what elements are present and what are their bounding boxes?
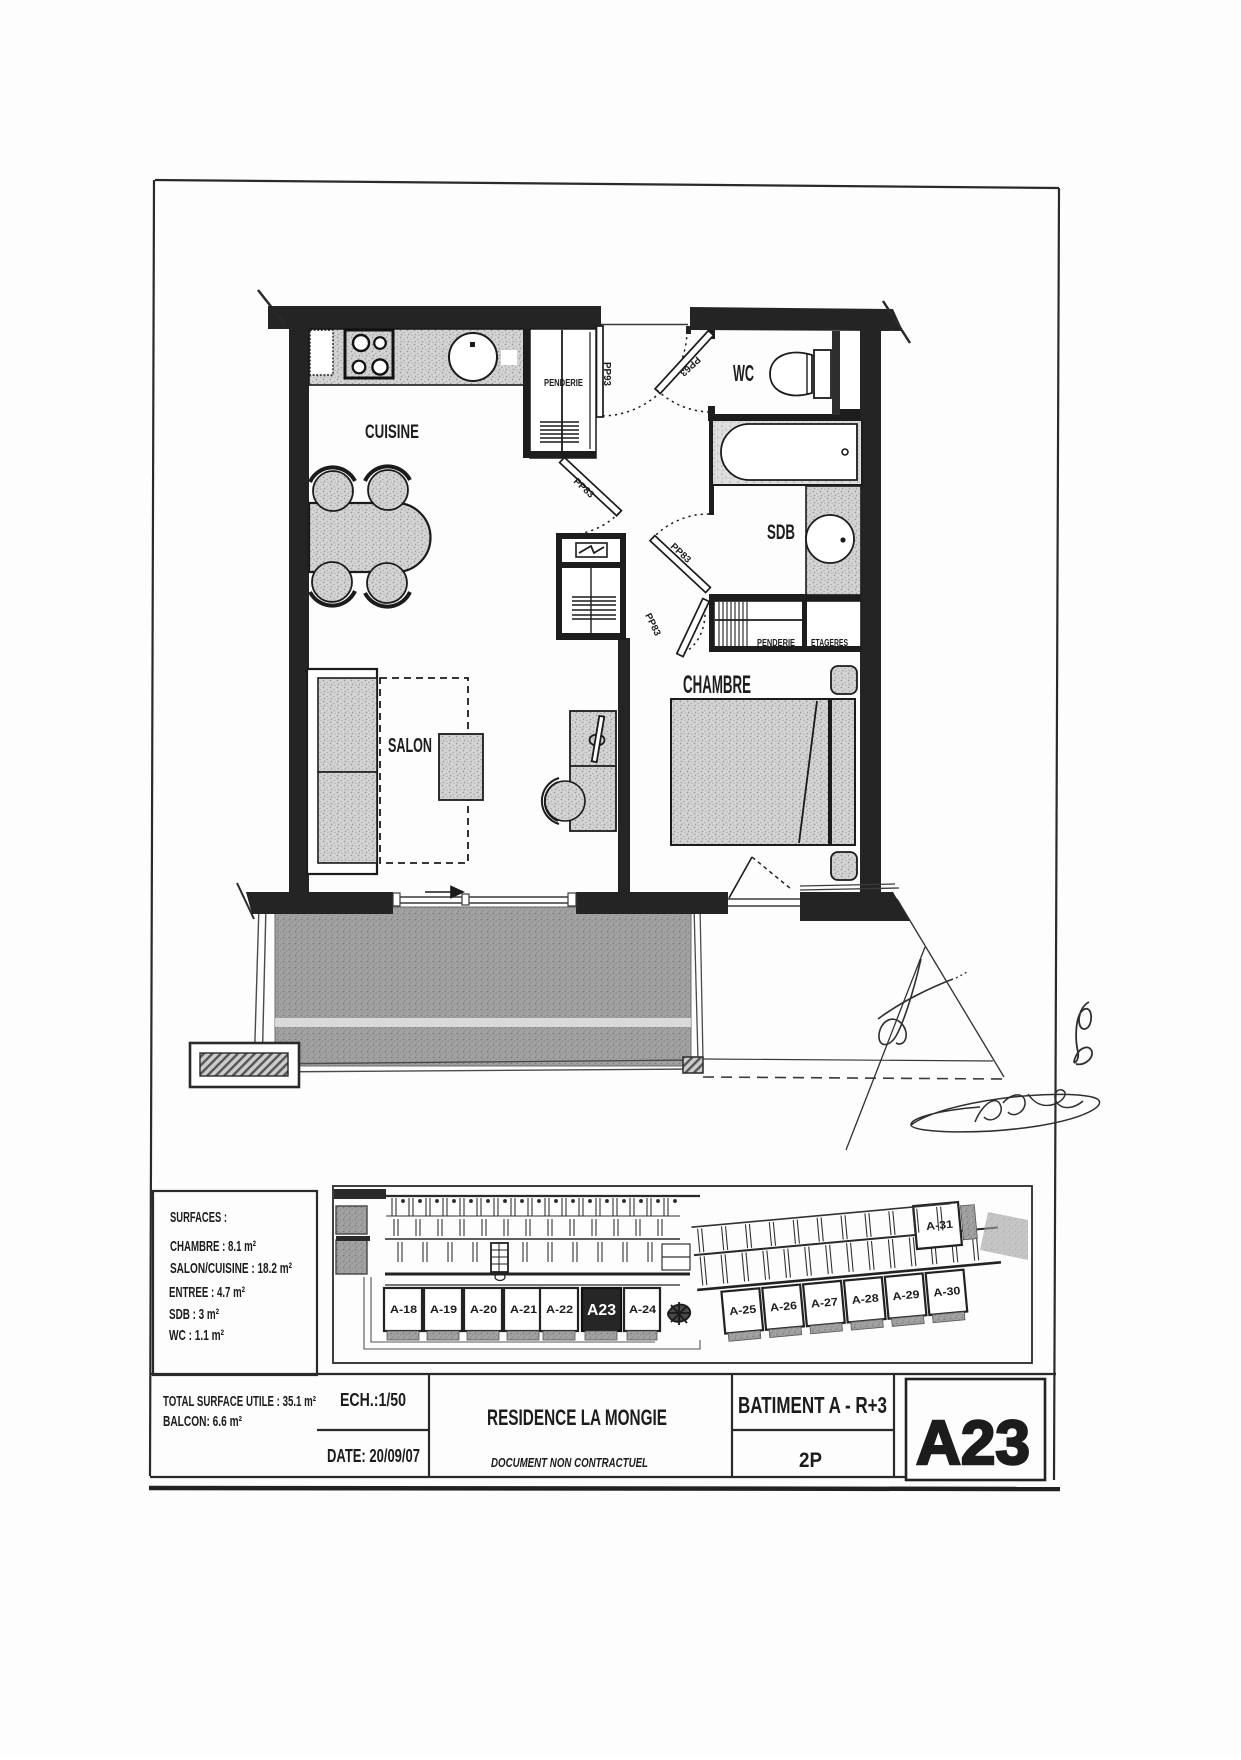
svg-text:PP93: PP93 xyxy=(601,362,612,386)
svg-text:BALCON: 6.6 m²: BALCON: 6.6 m² xyxy=(163,1414,242,1430)
svg-text:A-28: A-28 xyxy=(851,1293,879,1307)
svg-text:A-30: A-30 xyxy=(933,1285,961,1299)
svg-text:A-25: A-25 xyxy=(729,1304,757,1318)
svg-text:A-20: A-20 xyxy=(470,1304,497,1316)
svg-text:A23: A23 xyxy=(916,1409,1030,1478)
svg-text:PENDERIE: PENDERIE xyxy=(544,377,583,389)
svg-text:DATE: 20/09/07: DATE: 20/09/07 xyxy=(327,1446,420,1466)
svg-text:WC: WC xyxy=(733,360,754,386)
svg-text:CUISINE: CUISINE xyxy=(365,422,419,443)
svg-text:2P: 2P xyxy=(799,1449,822,1472)
svg-text:SALON/CUISINE : 18.2 m²: SALON/CUISINE : 18.2 m² xyxy=(170,1260,292,1277)
svg-text:A-27: A-27 xyxy=(810,1296,838,1310)
svg-text:CHAMBRE : 8.1 m²: CHAMBRE : 8.1 m² xyxy=(170,1238,256,1255)
svg-text:TOTAL SURFACE UTILE : 35.1 m²: TOTAL SURFACE UTILE : 35.1 m² xyxy=(163,1394,316,1410)
svg-text:A-29: A-29 xyxy=(892,1289,920,1303)
svg-text:A-24: A-24 xyxy=(629,1304,657,1316)
svg-text:ETAGERES: ETAGERES xyxy=(811,638,848,649)
svg-text:ENTREE : 4.7 m²: ENTREE : 4.7 m² xyxy=(169,1284,245,1301)
svg-text:PENDERIE: PENDERIE xyxy=(757,638,795,649)
svg-text:BATIMENT A - R+3: BATIMENT A - R+3 xyxy=(738,1392,887,1418)
svg-text:A23: A23 xyxy=(587,1302,616,1319)
svg-text:SDB : 3 m²: SDB : 3 m² xyxy=(169,1306,219,1323)
svg-text:A-22: A-22 xyxy=(546,1304,573,1316)
svg-text:A-21: A-21 xyxy=(510,1304,537,1316)
svg-text:RESIDENCE LA MONGIE: RESIDENCE LA MONGIE xyxy=(487,1405,667,1430)
svg-text:SURFACES :: SURFACES : xyxy=(170,1209,227,1226)
svg-text:SALON: SALON xyxy=(388,735,432,757)
svg-text:WC : 1.1 m²: WC : 1.1 m² xyxy=(169,1327,224,1344)
svg-text:SDB: SDB xyxy=(767,521,795,544)
svg-text:A-18: A-18 xyxy=(390,1304,417,1316)
svg-text:ECH.:1/50: ECH.:1/50 xyxy=(340,1390,406,1410)
svg-text:A-26: A-26 xyxy=(770,1300,798,1314)
svg-text:A-31: A-31 xyxy=(926,1219,954,1233)
svg-text:DOCUMENT NON CONTRACTUEL: DOCUMENT NON CONTRACTUEL xyxy=(491,1456,648,1470)
svg-text:CHAMBRE: CHAMBRE xyxy=(683,671,751,699)
svg-text:A-19: A-19 xyxy=(430,1304,457,1316)
